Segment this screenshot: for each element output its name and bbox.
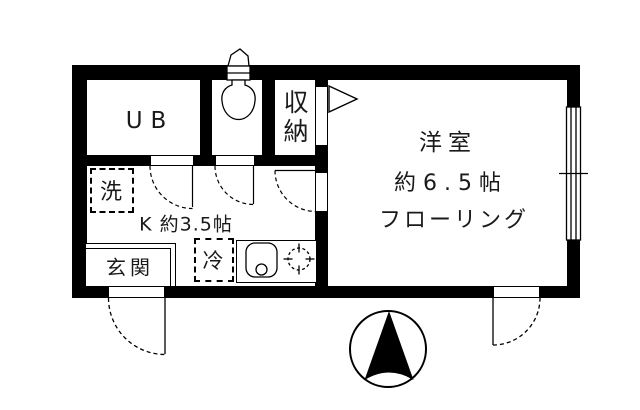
westroom-door-opening (493, 286, 540, 298)
storage-door-triangle-icon (329, 86, 357, 112)
storage-opening (315, 86, 328, 146)
kitchen-westroom-door-swing (275, 171, 316, 212)
compass-north-icon (350, 311, 426, 387)
ub-door-swing (150, 166, 193, 209)
western-room-flooring-label: フローリング (379, 202, 529, 234)
ub-door-threshold (150, 155, 194, 166)
storage-label: 収納 (281, 88, 311, 146)
ub-label: UB (126, 108, 175, 134)
wall-ub-toilet-divider (200, 80, 212, 166)
entrance-door-opening (108, 286, 165, 298)
washing-machine-label: 洗 (100, 174, 122, 206)
westroom-door-swing (493, 298, 540, 345)
kitchen-label: K 約3.5帖 (139, 210, 233, 237)
kitchen-westroom-door-opening (315, 172, 328, 212)
toilet-door-threshold (215, 155, 255, 166)
entrance-label: 玄関 (106, 252, 154, 281)
floor-plan: UB 収納 洋室 約6.5帖 フローリング K 約3.5帖 玄関 洗 冷 (0, 0, 640, 410)
wall-closet-block-bottom (85, 155, 328, 166)
toilet-door-swing (215, 166, 254, 205)
wall-toilet-storage-divider (262, 80, 275, 166)
toilet-icon (222, 49, 255, 120)
wall-top (72, 65, 580, 80)
refrigerator-label: 冷 (203, 245, 224, 275)
wall-right (567, 65, 580, 298)
entrance-door-swing (109, 298, 166, 355)
western-room-label: 洋室 (419, 123, 477, 157)
kitchen-counter (236, 240, 317, 283)
western-room-size-label: 約6.5帖 (394, 165, 508, 197)
